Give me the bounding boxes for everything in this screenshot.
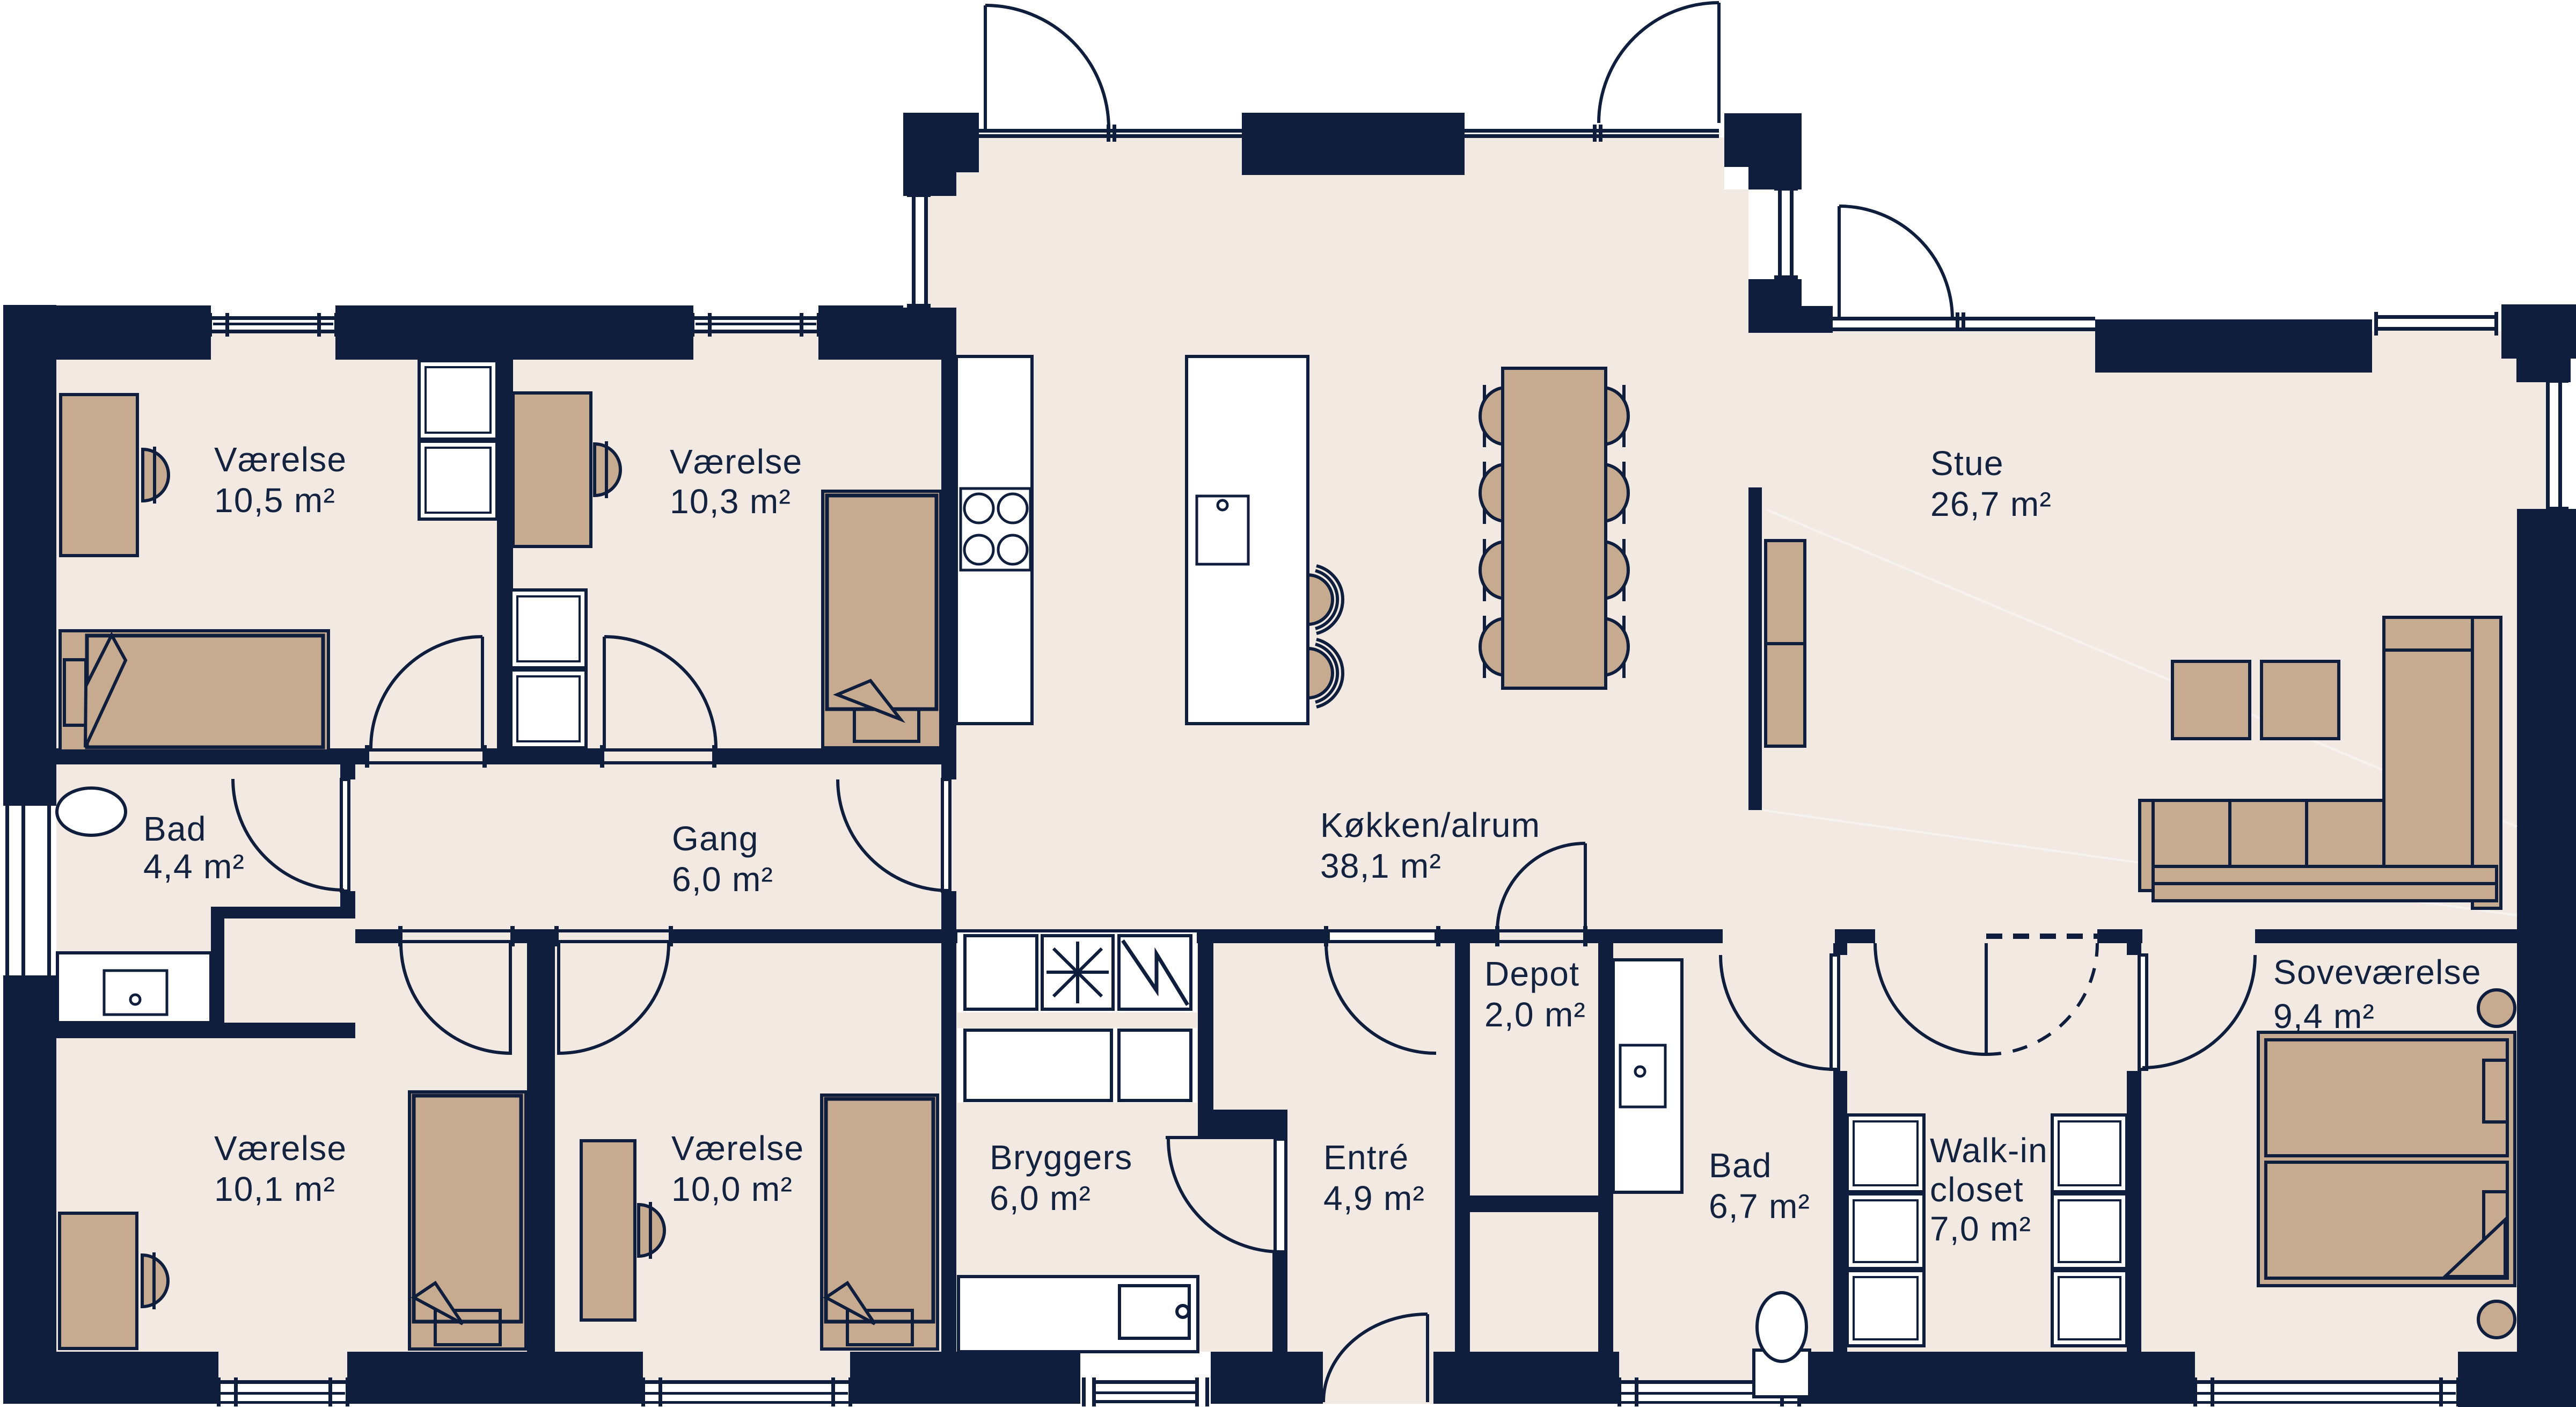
svg-text:2,0 m²: 2,0 m² [1484,995,1586,1034]
svg-text:10,5 m²: 10,5 m² [214,481,335,520]
svg-text:7,0 m²: 7,0 m² [1930,1209,2031,1248]
svg-text:Værelse: Værelse [214,440,347,479]
svg-text:4,9 m²: 4,9 m² [1323,1179,1425,1218]
svg-text:Walk-in: Walk-in [1930,1131,2048,1170]
svg-text:Entré: Entré [1323,1138,1409,1177]
svg-text:Soveværelse: Soveværelse [2273,953,2482,992]
svg-text:closet: closet [1930,1170,2024,1209]
svg-text:10,3 m²: 10,3 m² [670,482,791,521]
svg-text:Bryggers: Bryggers [990,1138,1133,1177]
svg-text:Gang: Gang [672,819,759,858]
svg-text:6,7 m²: 6,7 m² [1709,1187,1810,1226]
svg-text:6,0 m²: 6,0 m² [990,1179,1091,1218]
svg-text:Værelse: Værelse [670,442,802,481]
svg-text:Bad: Bad [1709,1146,1772,1185]
svg-text:Depot: Depot [1484,954,1579,993]
svg-text:10,0 m²: 10,0 m² [671,1170,793,1208]
svg-text:Bad: Bad [143,810,207,848]
svg-text:38,1 m²: 38,1 m² [1320,847,1441,885]
svg-text:Køkken/alrum: Køkken/alrum [1320,806,1540,844]
svg-text:Værelse: Værelse [671,1129,804,1168]
svg-text:Værelse: Værelse [214,1129,347,1168]
svg-text:4,4 m²: 4,4 m² [143,847,245,886]
svg-text:10,1 m²: 10,1 m² [214,1170,335,1208]
svg-text:9,4 m²: 9,4 m² [2273,997,2375,1036]
svg-text:Stue: Stue [1930,444,2004,483]
svg-text:26,7 m²: 26,7 m² [1930,485,2052,523]
svg-text:6,0 m²: 6,0 m² [672,860,773,899]
